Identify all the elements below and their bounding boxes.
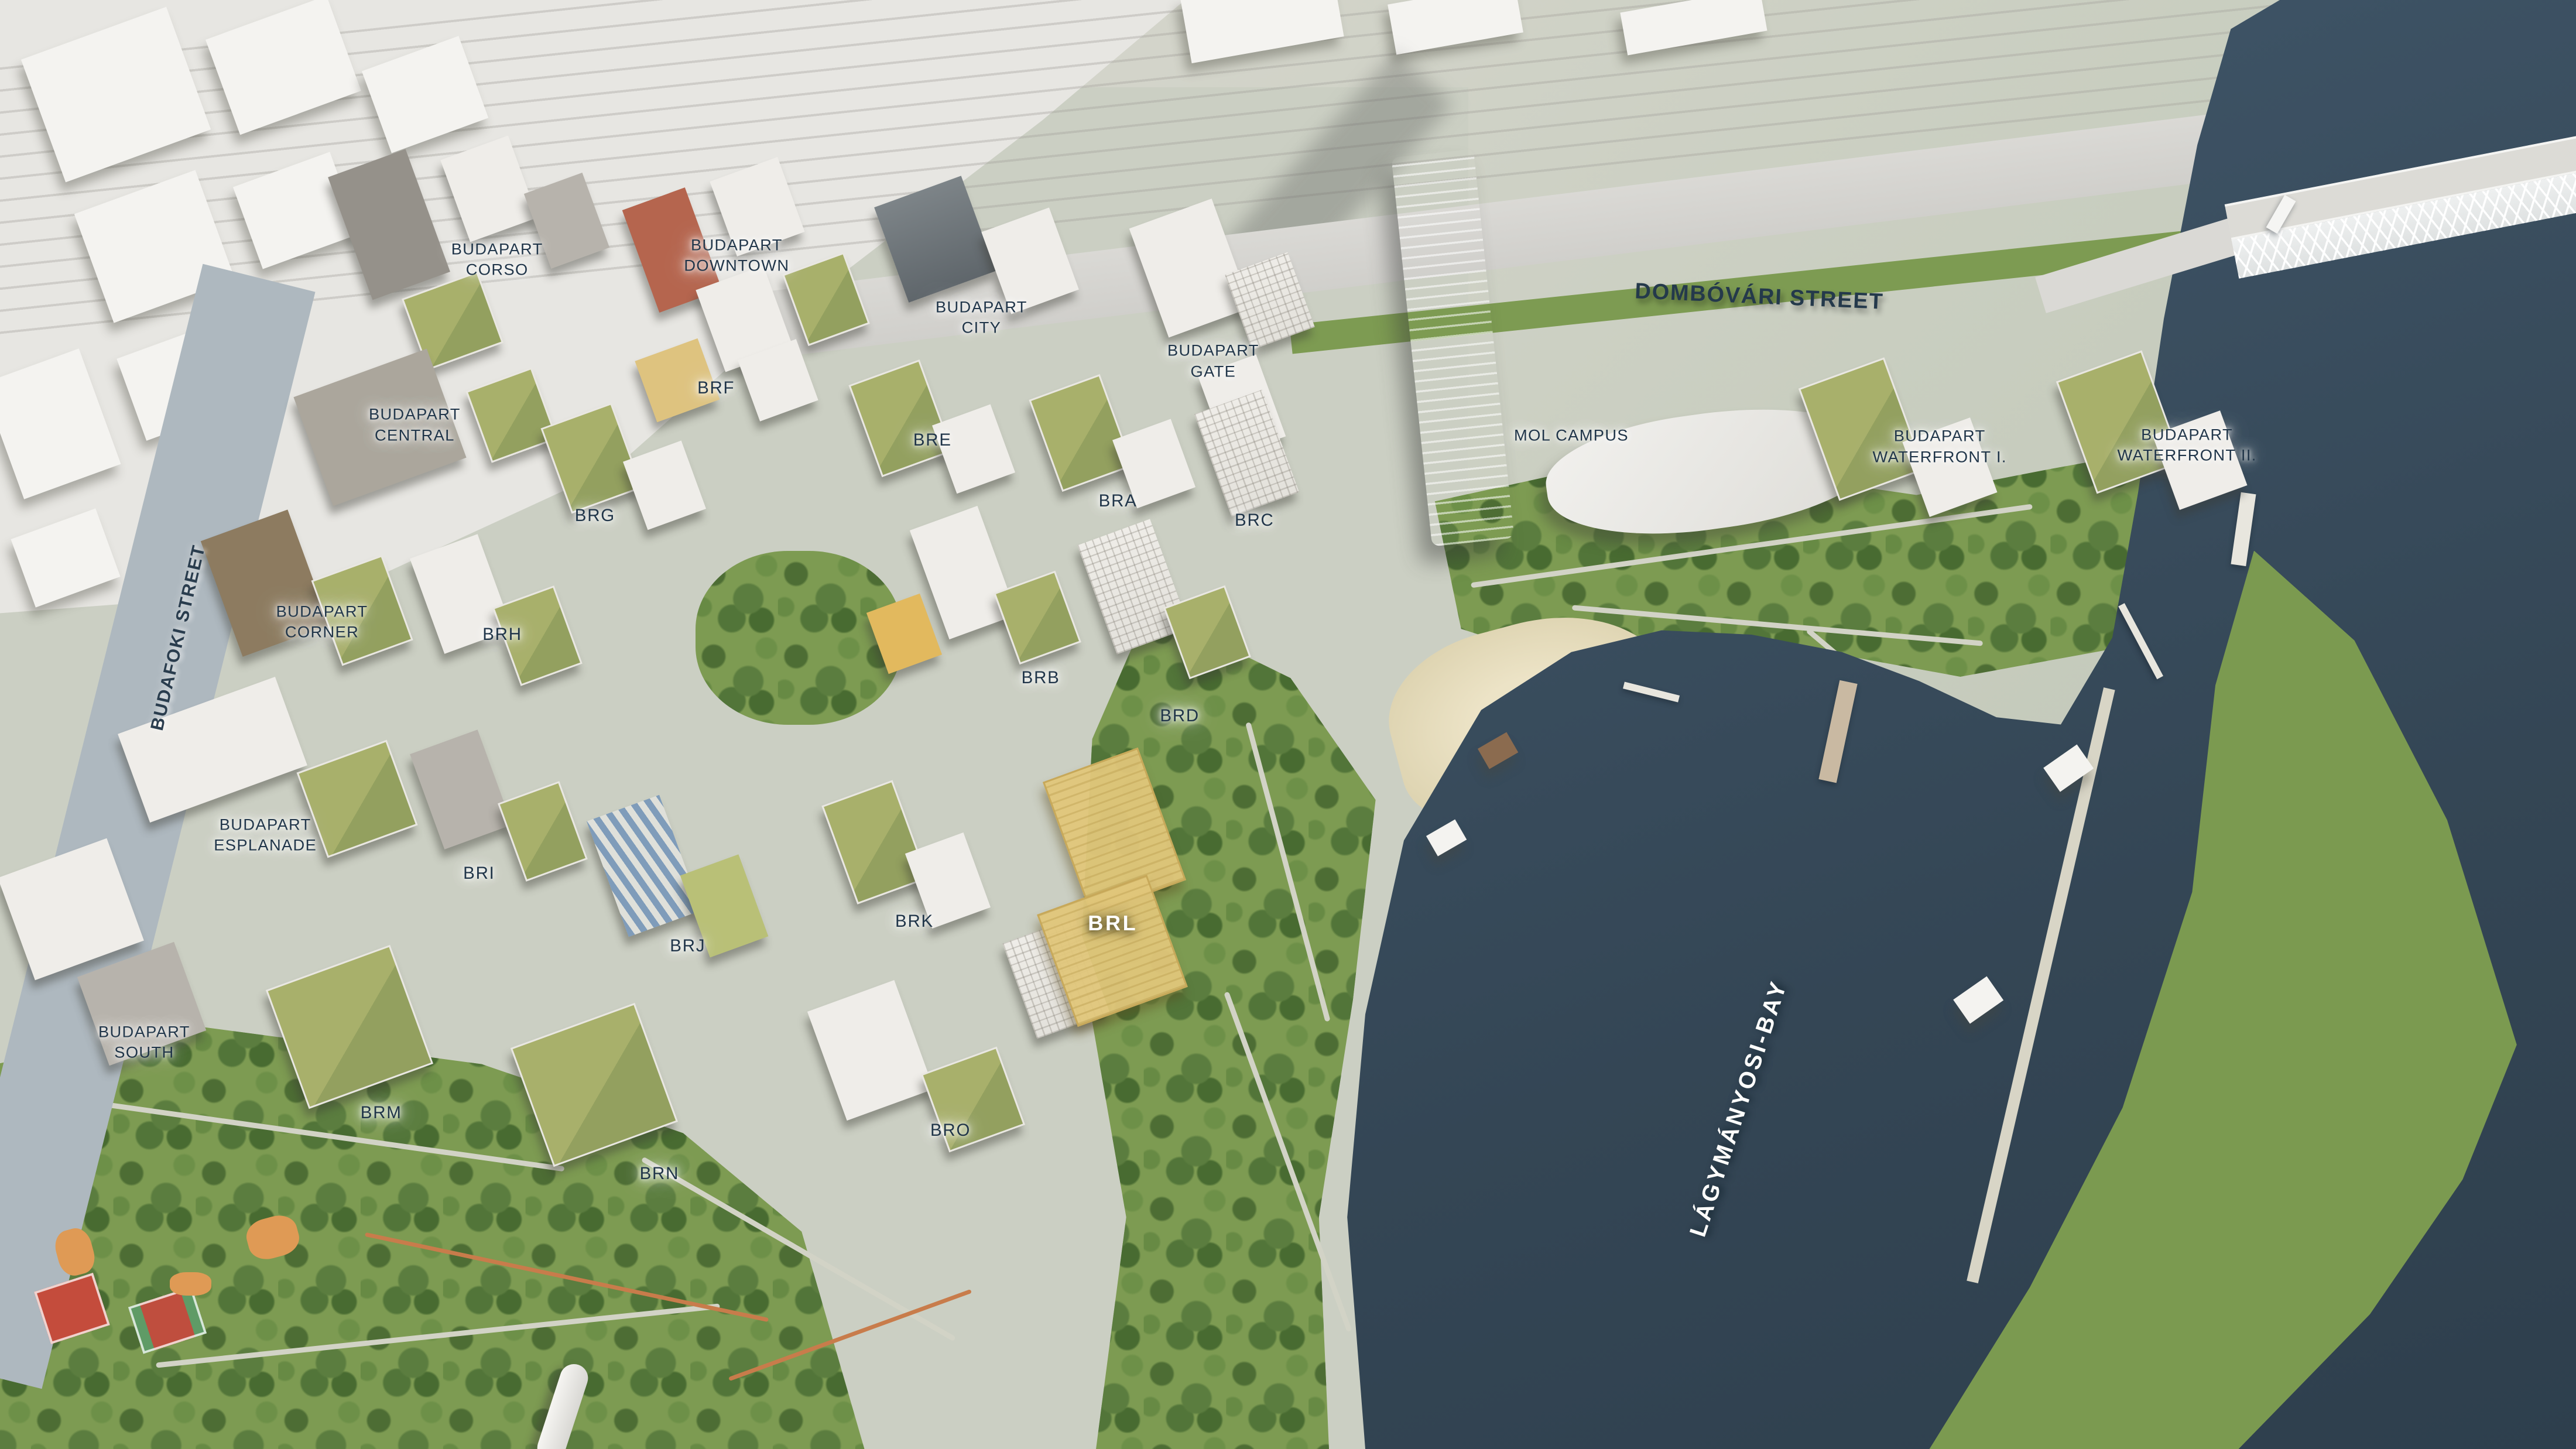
label-budapart-city[interactable]: BUDAPART CITY [936, 297, 1027, 338]
label-line: BUDAPART [684, 234, 789, 255]
label-line: ESPLANADE [214, 835, 317, 855]
courtyard-park [696, 551, 902, 725]
label-line: BUDAPART [1167, 340, 1259, 361]
label-budapart-waterfront-2[interactable]: BUDAPART WATERFRONT II. [2117, 424, 2256, 465]
label-brk[interactable]: BRK [895, 910, 934, 933]
label-budapart-corso[interactable]: BUDAPART CORSO [451, 239, 543, 280]
label-line: BUDAPART [276, 601, 368, 621]
label-line: BRC [1235, 509, 1275, 531]
label-line: BRN [640, 1163, 680, 1185]
label-line: BRM [361, 1102, 402, 1124]
label-line: BRB [1022, 667, 1060, 689]
label-line: BUDAPART [2117, 424, 2256, 444]
label-bre[interactable]: BRE [913, 429, 952, 451]
label-line: DOWNTOWN [684, 255, 789, 276]
label-budapart-central[interactable]: BUDAPART CENTRAL [369, 404, 461, 446]
label-bro[interactable]: BRO [930, 1119, 971, 1141]
label-budapart-waterfront-1[interactable]: BUDAPART WATERFRONT I. [1873, 426, 2007, 467]
label-brb[interactable]: BRB [1022, 667, 1060, 689]
label-bra[interactable]: BRA [1099, 490, 1138, 512]
label-line: BRI [463, 862, 495, 885]
label-line: WATERFRONT I. [1873, 446, 2007, 467]
label-brc[interactable]: BRC [1235, 509, 1275, 531]
label-brh[interactable]: BRH [482, 624, 522, 646]
label-line: BUDAPART [1873, 426, 2007, 446]
label-mol-campus[interactable]: MOL CAMPUS [1514, 424, 1629, 445]
label-line: BRE [913, 429, 952, 451]
label-brm[interactable]: BRM [361, 1102, 402, 1124]
label-line: CENTRAL [369, 424, 461, 445]
label-line: BUDAPART [98, 1021, 190, 1042]
label-line: BRK [895, 910, 934, 933]
label-line: BUDAPART [214, 814, 317, 834]
label-line: BRG [575, 505, 615, 527]
label-budapart-gate[interactable]: BUDAPART GATE [1167, 340, 1259, 382]
label-line: GATE [1167, 361, 1259, 381]
label-line: BUDAPART [369, 404, 461, 424]
label-brj[interactable]: BRJ [670, 935, 705, 957]
label-line: BRA [1099, 490, 1138, 512]
label-line: BRH [482, 624, 522, 646]
label-budapart-corner[interactable]: BUDAPART CORNER [276, 601, 368, 642]
label-budapart-downtown[interactable]: BUDAPART DOWNTOWN [684, 234, 789, 276]
label-budapart-esplanade[interactable]: BUDAPART ESPLANADE [214, 814, 317, 855]
label-line: BUDAPART [936, 297, 1027, 317]
label-brd[interactable]: BRD [1160, 704, 1200, 727]
label-brl-highlight[interactable]: BRL [1088, 911, 1138, 936]
label-line: BRF [697, 377, 735, 399]
budapart-masterplan-map: BUDAPART CORSO BUDAPART DOWNTOWN BUDAPAR… [0, 0, 2576, 1449]
label-line: CORNER [276, 622, 368, 642]
label-line: MOL CAMPUS [1514, 424, 1629, 445]
label-line: SOUTH [98, 1042, 190, 1063]
label-brg[interactable]: BRG [575, 505, 615, 527]
label-line: BRJ [670, 935, 705, 957]
label-line: BRO [930, 1119, 971, 1141]
label-line: BRD [1160, 704, 1200, 727]
label-bri[interactable]: BRI [463, 862, 495, 885]
label-brf[interactable]: BRF [697, 377, 735, 399]
label-line: CORSO [451, 259, 543, 280]
label-budapart-south[interactable]: BUDAPART SOUTH [98, 1021, 190, 1063]
label-line: CITY [936, 317, 1027, 338]
label-brn[interactable]: BRN [640, 1163, 680, 1185]
label-line: BRL [1088, 911, 1138, 935]
label-line: BUDAPART [451, 239, 543, 259]
label-line: WATERFRONT II. [2117, 445, 2256, 465]
playground-area [170, 1272, 211, 1296]
